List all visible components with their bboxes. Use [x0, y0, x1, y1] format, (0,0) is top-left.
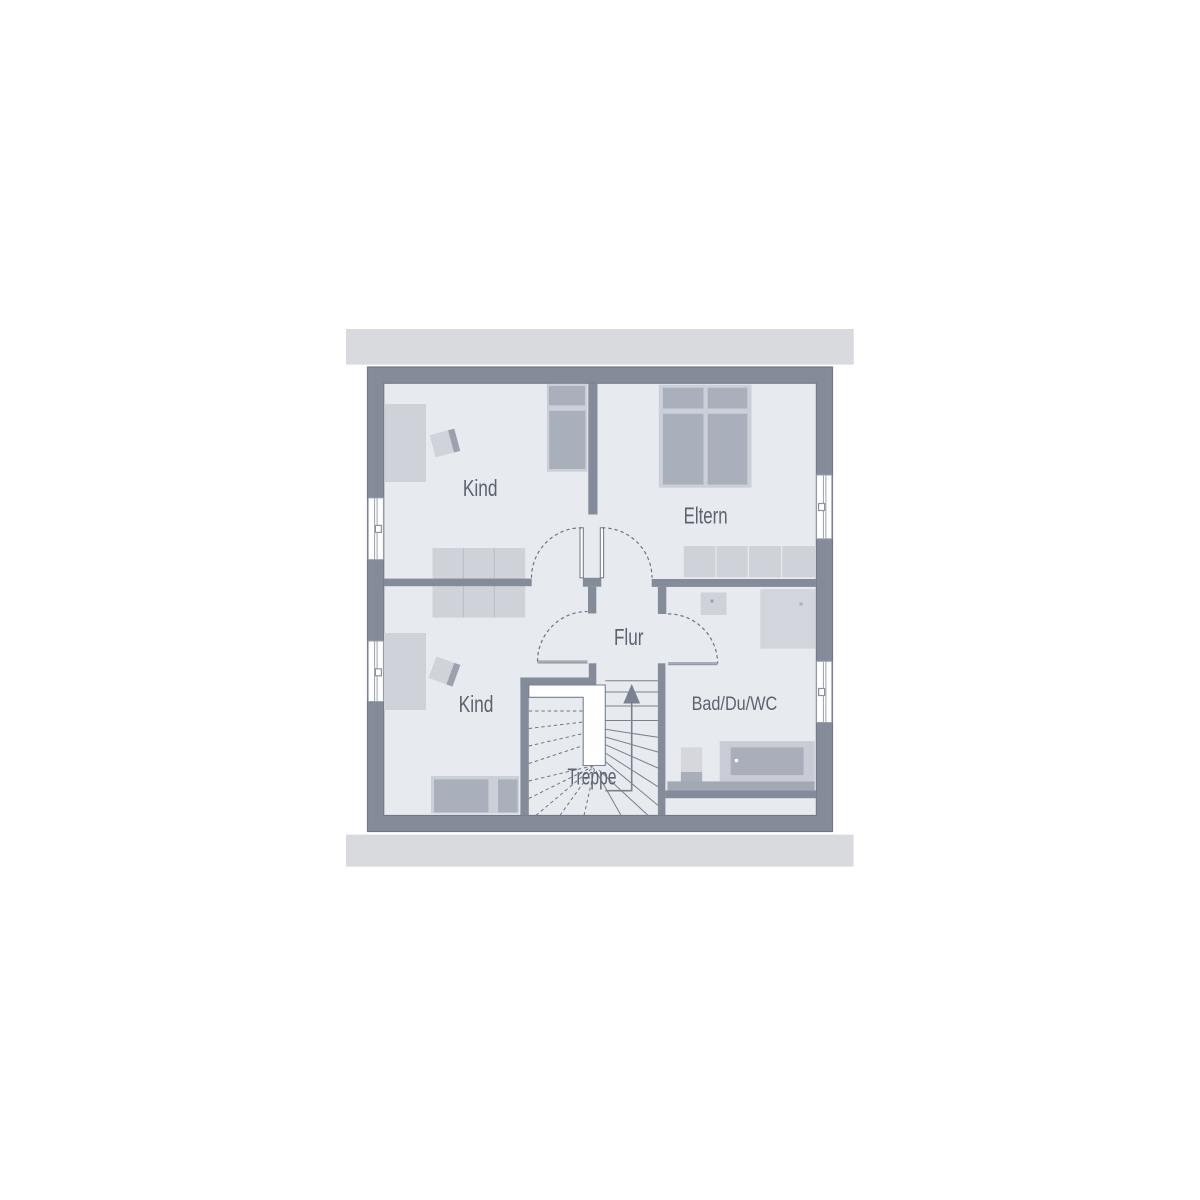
- svg-text:Bad/Du/WC: Bad/Du/WC: [692, 693, 778, 714]
- svg-text:Eltern: Eltern: [684, 504, 728, 529]
- svg-text:Flur: Flur: [614, 626, 644, 651]
- svg-text:Kind: Kind: [459, 693, 494, 718]
- svg-text:Kind: Kind: [463, 477, 498, 502]
- svg-text:Treppe: Treppe: [567, 765, 616, 791]
